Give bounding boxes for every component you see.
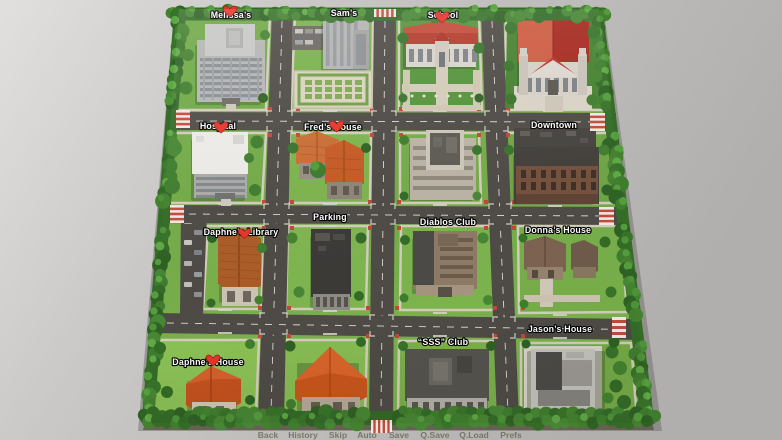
svg-text:Jason’s House: Jason’s House [528,324,592,334]
svg-text:Donna’s House: Donna’s House [525,225,591,235]
svg-text:Q.Save: Q.Save [420,430,449,440]
svg-text:Auto: Auto [357,430,377,440]
svg-text:Sam’s: Sam’s [331,8,358,18]
svg-text:Parking: Parking [313,212,347,222]
svg-text:Q.Load: Q.Load [459,430,489,440]
svg-text:History: History [288,430,318,440]
svg-text:Downtown: Downtown [531,120,577,130]
svg-text:Skip: Skip [329,430,347,440]
svg-text:Back: Back [258,430,279,440]
svg-text:“SSS” Club: “SSS” Club [418,337,469,347]
svg-text:Prefs: Prefs [500,430,522,440]
svg-text:Save: Save [389,430,409,440]
svg-text:Diablos Club: Diablos Club [420,217,477,227]
